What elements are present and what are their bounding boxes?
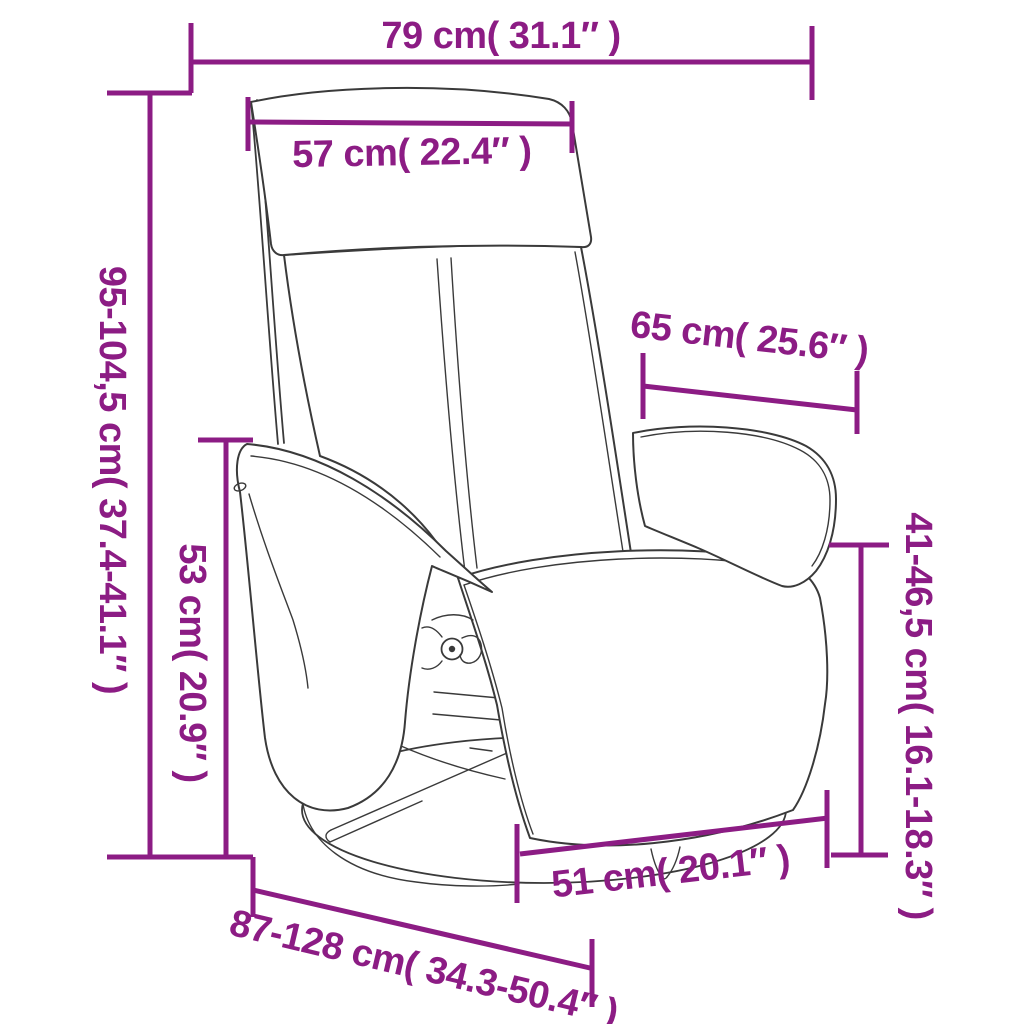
seat-rail-upper [434,692,499,698]
dimension-backrest-width: 65 cm( 25.6″ ) [628,304,871,434]
mechanism-knob-center [449,646,455,652]
dim-label-overall-width: 79 cm( 31.1″ ) [381,15,620,57]
mechanism-bracket-top [422,627,442,637]
dimension-overall-depth: 87-128 cm( 34.3-50.4″ ) [107,857,622,1024]
dim-label-headrest-width: 57 cm( 22.4″ ) [292,130,532,176]
mechanism-cap [432,615,473,620]
dim-line [643,386,857,410]
seat-rail-lower [433,714,501,720]
dim-label-overall-height: 95-104,5 cm( 37.4-41.1″ ) [91,266,133,694]
recliner-dimension-diagram: 79 cm( 31.1″ ) 57 cm( 22.4″ ) 95-104,5 c… [0,0,1024,1024]
dim-label-armrest-height: 53 cm( 20.9″ ) [171,543,213,782]
mechanism-bracket-bottom [422,661,442,669]
seat-footrest-outline [458,550,827,845]
dimension-overall-width: 79 cm( 31.1″ ) [191,15,812,100]
dimension-seat-height: 41-46,5 cm( 16.1-18.3″ ) [829,512,939,920]
seat-rail-dash [470,748,492,751]
dim-label-seat-height: 41-46,5 cm( 16.1-18.3″ ) [897,512,939,920]
recliner-line-art [233,88,836,886]
base-plate-corner [326,830,331,842]
dim-line [248,122,572,124]
dim-label-backrest-width: 65 cm( 25.6″ ) [628,304,871,372]
dimension-diagram-page: 79 cm( 31.1″ ) 57 cm( 22.4″ ) 95-104,5 c… [0,0,1024,1024]
